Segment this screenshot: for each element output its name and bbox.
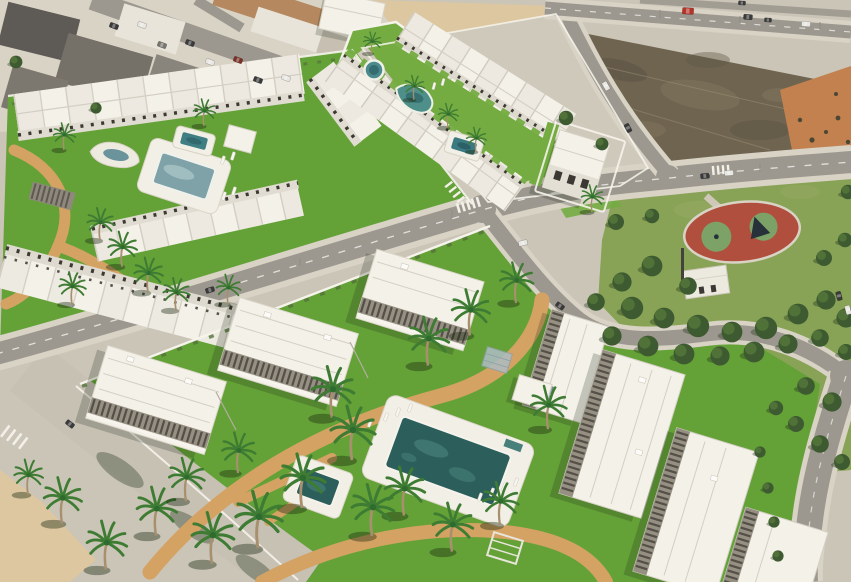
car xyxy=(724,170,733,176)
junction xyxy=(656,165,680,189)
car xyxy=(738,1,745,6)
car xyxy=(700,173,709,179)
car xyxy=(801,21,810,27)
car xyxy=(743,14,752,20)
car xyxy=(764,18,771,23)
pond-deep-water xyxy=(369,65,379,75)
red-van xyxy=(682,7,694,14)
aerial-render-image xyxy=(0,0,851,582)
worn-grass xyxy=(780,185,820,199)
aerial-development-render xyxy=(0,0,851,582)
